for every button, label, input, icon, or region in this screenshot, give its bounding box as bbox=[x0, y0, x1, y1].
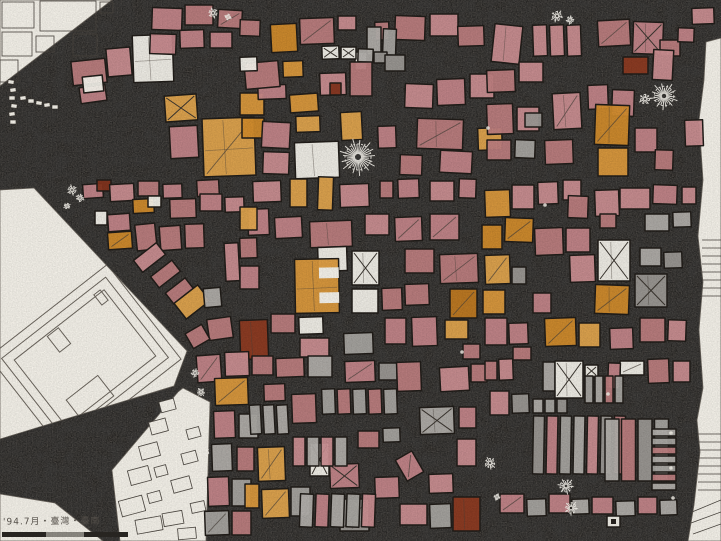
pink-building bbox=[395, 15, 426, 40]
pink-building bbox=[459, 179, 477, 199]
pink-building bbox=[237, 447, 254, 471]
scale-bar bbox=[2, 532, 128, 537]
pink-building bbox=[430, 214, 459, 240]
white-building bbox=[555, 361, 583, 398]
pink-building bbox=[358, 431, 379, 448]
orange-building bbox=[317, 177, 333, 211]
gray-building bbox=[299, 494, 313, 527]
gray-building bbox=[638, 419, 652, 481]
pink-building bbox=[361, 494, 375, 527]
gray-building bbox=[525, 113, 542, 127]
white-building bbox=[352, 251, 379, 285]
pink-building bbox=[400, 155, 423, 176]
gray-building bbox=[652, 483, 676, 490]
pink-building bbox=[310, 220, 353, 247]
pink-building bbox=[397, 362, 422, 392]
pink-building bbox=[106, 47, 132, 77]
white-building bbox=[341, 47, 356, 59]
pink-building bbox=[490, 391, 509, 415]
white-building bbox=[294, 141, 339, 179]
orange-building bbox=[262, 489, 290, 519]
orange-building bbox=[164, 94, 198, 122]
pink-building bbox=[395, 217, 423, 242]
pink-building bbox=[340, 184, 370, 208]
pink-building bbox=[405, 284, 430, 306]
white-building bbox=[95, 211, 107, 225]
pink-building bbox=[350, 62, 372, 96]
pink-building bbox=[240, 238, 258, 259]
pink-building bbox=[678, 28, 694, 43]
white-building bbox=[585, 365, 598, 377]
pink-building bbox=[635, 128, 657, 152]
orange-building bbox=[594, 104, 629, 145]
gray-building bbox=[430, 504, 452, 529]
pink-building bbox=[648, 359, 670, 384]
pink-building bbox=[546, 416, 558, 474]
pink-building bbox=[208, 477, 230, 507]
pink-building bbox=[252, 356, 273, 375]
gray-building bbox=[615, 376, 623, 403]
gray-building bbox=[249, 405, 262, 435]
white-building bbox=[352, 289, 378, 313]
gray-building bbox=[645, 214, 669, 231]
pink-building bbox=[485, 318, 507, 345]
pink-building bbox=[110, 183, 135, 201]
pink-building bbox=[163, 184, 182, 199]
orange-building bbox=[242, 118, 264, 138]
pink-building bbox=[485, 361, 497, 380]
pink-building bbox=[240, 266, 259, 289]
pink-building bbox=[292, 394, 317, 424]
pink-building bbox=[253, 181, 282, 203]
pink-building bbox=[622, 419, 636, 481]
white-building bbox=[607, 516, 620, 527]
gray-building bbox=[605, 419, 619, 481]
orange-building bbox=[270, 23, 297, 52]
pink-building bbox=[486, 104, 513, 135]
pink-building bbox=[500, 494, 524, 513]
pink-building bbox=[405, 249, 434, 273]
gray-building bbox=[673, 212, 692, 228]
pink-building bbox=[652, 49, 674, 80]
pink-building bbox=[300, 17, 335, 44]
pink-building bbox=[261, 121, 290, 148]
gray-building bbox=[344, 333, 374, 355]
orange-building bbox=[296, 116, 321, 133]
dark-red-building bbox=[623, 57, 648, 74]
gray-building bbox=[573, 416, 585, 474]
pink-building bbox=[605, 376, 613, 403]
pink-building bbox=[224, 243, 240, 282]
pink-building bbox=[653, 185, 678, 205]
white-building bbox=[299, 317, 324, 335]
pink-building bbox=[586, 416, 598, 474]
orange-building bbox=[595, 284, 630, 314]
pink-building bbox=[263, 152, 290, 175]
pink-building bbox=[595, 190, 620, 217]
pink-building bbox=[513, 347, 531, 360]
orange-building bbox=[215, 377, 249, 405]
pink-building bbox=[214, 411, 236, 439]
orange-building bbox=[240, 207, 257, 230]
pink-building bbox=[638, 497, 657, 514]
pink-building bbox=[535, 228, 564, 256]
gray-building bbox=[664, 252, 683, 269]
pink-building bbox=[321, 437, 333, 466]
pink-building bbox=[378, 126, 397, 149]
pink-building bbox=[365, 214, 389, 235]
pink-building bbox=[552, 92, 582, 129]
gray-building bbox=[559, 416, 571, 474]
gray-building bbox=[660, 500, 678, 516]
dark-orange-building bbox=[450, 289, 477, 318]
gray-building bbox=[616, 501, 636, 517]
pink-building bbox=[533, 293, 551, 313]
map-caption: '94.7月・臺灣・臺南 bbox=[3, 513, 101, 527]
gray-building bbox=[635, 274, 667, 307]
orange-building bbox=[545, 317, 577, 346]
orange-building bbox=[245, 484, 259, 508]
gray-building bbox=[532, 416, 544, 474]
pink-building bbox=[620, 188, 650, 209]
gray-building bbox=[322, 389, 336, 414]
pink-building bbox=[416, 118, 463, 150]
pink-building bbox=[509, 323, 529, 345]
pink-building bbox=[538, 182, 559, 205]
gray-building bbox=[353, 389, 367, 414]
orange-building bbox=[340, 111, 362, 140]
gray-building bbox=[557, 399, 567, 413]
gray-building bbox=[307, 437, 319, 466]
white-building bbox=[148, 196, 161, 207]
pink-building bbox=[458, 26, 485, 47]
pink-building bbox=[487, 70, 516, 93]
pink-building bbox=[430, 181, 454, 201]
white-building bbox=[322, 46, 339, 60]
orange-building bbox=[579, 323, 600, 347]
pink-building bbox=[439, 150, 472, 174]
gray-building bbox=[512, 394, 530, 414]
pink-building bbox=[300, 338, 329, 357]
pink-building bbox=[685, 120, 704, 147]
orange-building bbox=[485, 255, 511, 285]
pink-building bbox=[440, 253, 479, 283]
pink-building bbox=[138, 181, 159, 196]
orange-building bbox=[257, 447, 285, 482]
pink-building bbox=[457, 439, 476, 466]
gray-building bbox=[379, 363, 397, 380]
gray-building bbox=[205, 511, 230, 536]
pink-building bbox=[640, 318, 665, 342]
pink-building bbox=[225, 352, 250, 377]
pink-building bbox=[459, 407, 476, 428]
pink-building bbox=[185, 224, 205, 249]
gray-building bbox=[515, 140, 536, 159]
map-canvas bbox=[0, 0, 721, 541]
pink-building bbox=[180, 30, 205, 49]
pink-building bbox=[652, 447, 676, 454]
gray-building bbox=[527, 499, 547, 517]
gray-building bbox=[358, 49, 373, 63]
pink-building bbox=[382, 288, 403, 311]
orange-building bbox=[482, 225, 502, 249]
gray-building bbox=[384, 389, 398, 414]
pink-building bbox=[439, 366, 469, 391]
pink-building bbox=[200, 194, 222, 211]
orange-building bbox=[483, 290, 505, 314]
gray-building bbox=[585, 376, 593, 403]
orange-building bbox=[107, 231, 132, 250]
pink-building bbox=[499, 359, 514, 380]
orange-building bbox=[505, 218, 534, 243]
pink-building bbox=[264, 384, 286, 402]
pink-building bbox=[400, 504, 427, 525]
white-building bbox=[82, 75, 104, 93]
gray-building bbox=[420, 406, 455, 434]
pink-building bbox=[405, 84, 434, 109]
pink-building bbox=[568, 196, 589, 219]
pink-building bbox=[385, 318, 406, 344]
pink-building bbox=[692, 8, 715, 25]
gray-building bbox=[263, 405, 276, 435]
gray-building bbox=[330, 494, 344, 527]
pink-building bbox=[592, 497, 613, 514]
white-building bbox=[598, 240, 630, 281]
white-building bbox=[240, 57, 257, 72]
pink-building bbox=[652, 474, 676, 481]
gray-building bbox=[212, 444, 233, 472]
gray-building bbox=[308, 356, 332, 377]
pink-building bbox=[597, 19, 630, 47]
gray-building bbox=[545, 399, 555, 413]
pink-building bbox=[673, 361, 690, 382]
pink-building bbox=[338, 16, 356, 30]
pink-building bbox=[430, 14, 458, 36]
pink-building bbox=[150, 34, 177, 55]
gray-building bbox=[543, 362, 555, 391]
pink-building bbox=[210, 32, 232, 48]
pink-building bbox=[293, 437, 305, 466]
orange-building bbox=[485, 190, 511, 218]
dark-red-building bbox=[453, 497, 480, 531]
gray-building bbox=[533, 399, 543, 413]
gray-building bbox=[335, 437, 347, 466]
pink-building bbox=[600, 214, 616, 228]
pink-building bbox=[682, 187, 696, 204]
pink-building bbox=[437, 79, 466, 106]
pink-building bbox=[549, 25, 564, 56]
pink-building bbox=[330, 464, 360, 489]
orange-building bbox=[295, 259, 340, 314]
pink-building bbox=[232, 511, 251, 535]
gray-building bbox=[652, 438, 676, 445]
pink-building bbox=[368, 389, 382, 414]
gray-building bbox=[276, 405, 289, 435]
pink-building bbox=[185, 5, 213, 25]
pink-building bbox=[532, 25, 547, 56]
orange-building bbox=[598, 148, 628, 176]
pink-building bbox=[519, 62, 543, 82]
dark-red-building bbox=[330, 83, 341, 95]
pink-building bbox=[463, 344, 480, 359]
map-viewport: '94.7月・臺灣・臺南 bbox=[0, 0, 721, 541]
gray-building bbox=[346, 494, 360, 527]
pink-building bbox=[668, 320, 687, 342]
pink-building bbox=[271, 314, 295, 333]
pink-building bbox=[566, 25, 581, 56]
pink-building bbox=[512, 185, 534, 209]
pink-building bbox=[380, 181, 393, 198]
pink-building bbox=[610, 328, 634, 350]
gray-building bbox=[383, 428, 400, 443]
pink-building bbox=[315, 494, 329, 527]
pink-building bbox=[566, 228, 590, 252]
pink-building bbox=[274, 216, 302, 238]
pink-building bbox=[570, 255, 596, 283]
gray-building bbox=[385, 55, 405, 71]
orange-building bbox=[289, 93, 318, 113]
gray-building bbox=[203, 287, 222, 307]
pink-building bbox=[107, 213, 130, 231]
pink-building bbox=[152, 7, 183, 30]
pink-building bbox=[170, 199, 197, 219]
pink-building bbox=[276, 358, 305, 378]
gray-building bbox=[652, 456, 676, 463]
pink-building bbox=[240, 20, 261, 37]
pink-building bbox=[337, 389, 351, 414]
gray-building bbox=[512, 267, 526, 284]
pink-building bbox=[375, 477, 400, 499]
pink-building bbox=[491, 24, 523, 65]
pink-building bbox=[412, 317, 438, 347]
orange-building bbox=[290, 179, 307, 207]
pink-building bbox=[169, 125, 199, 158]
orange-building bbox=[445, 320, 468, 339]
pink-building bbox=[655, 150, 674, 171]
white-building bbox=[620, 361, 644, 375]
pink-building bbox=[207, 316, 234, 340]
pink-building bbox=[487, 140, 511, 160]
pink-building bbox=[545, 140, 574, 165]
pink-building bbox=[429, 474, 454, 494]
pink-building bbox=[159, 225, 182, 250]
gray-building bbox=[595, 376, 603, 403]
pink-building bbox=[345, 360, 376, 382]
gray-building bbox=[640, 248, 661, 266]
orange-building bbox=[283, 61, 304, 78]
pink-building bbox=[398, 179, 420, 199]
